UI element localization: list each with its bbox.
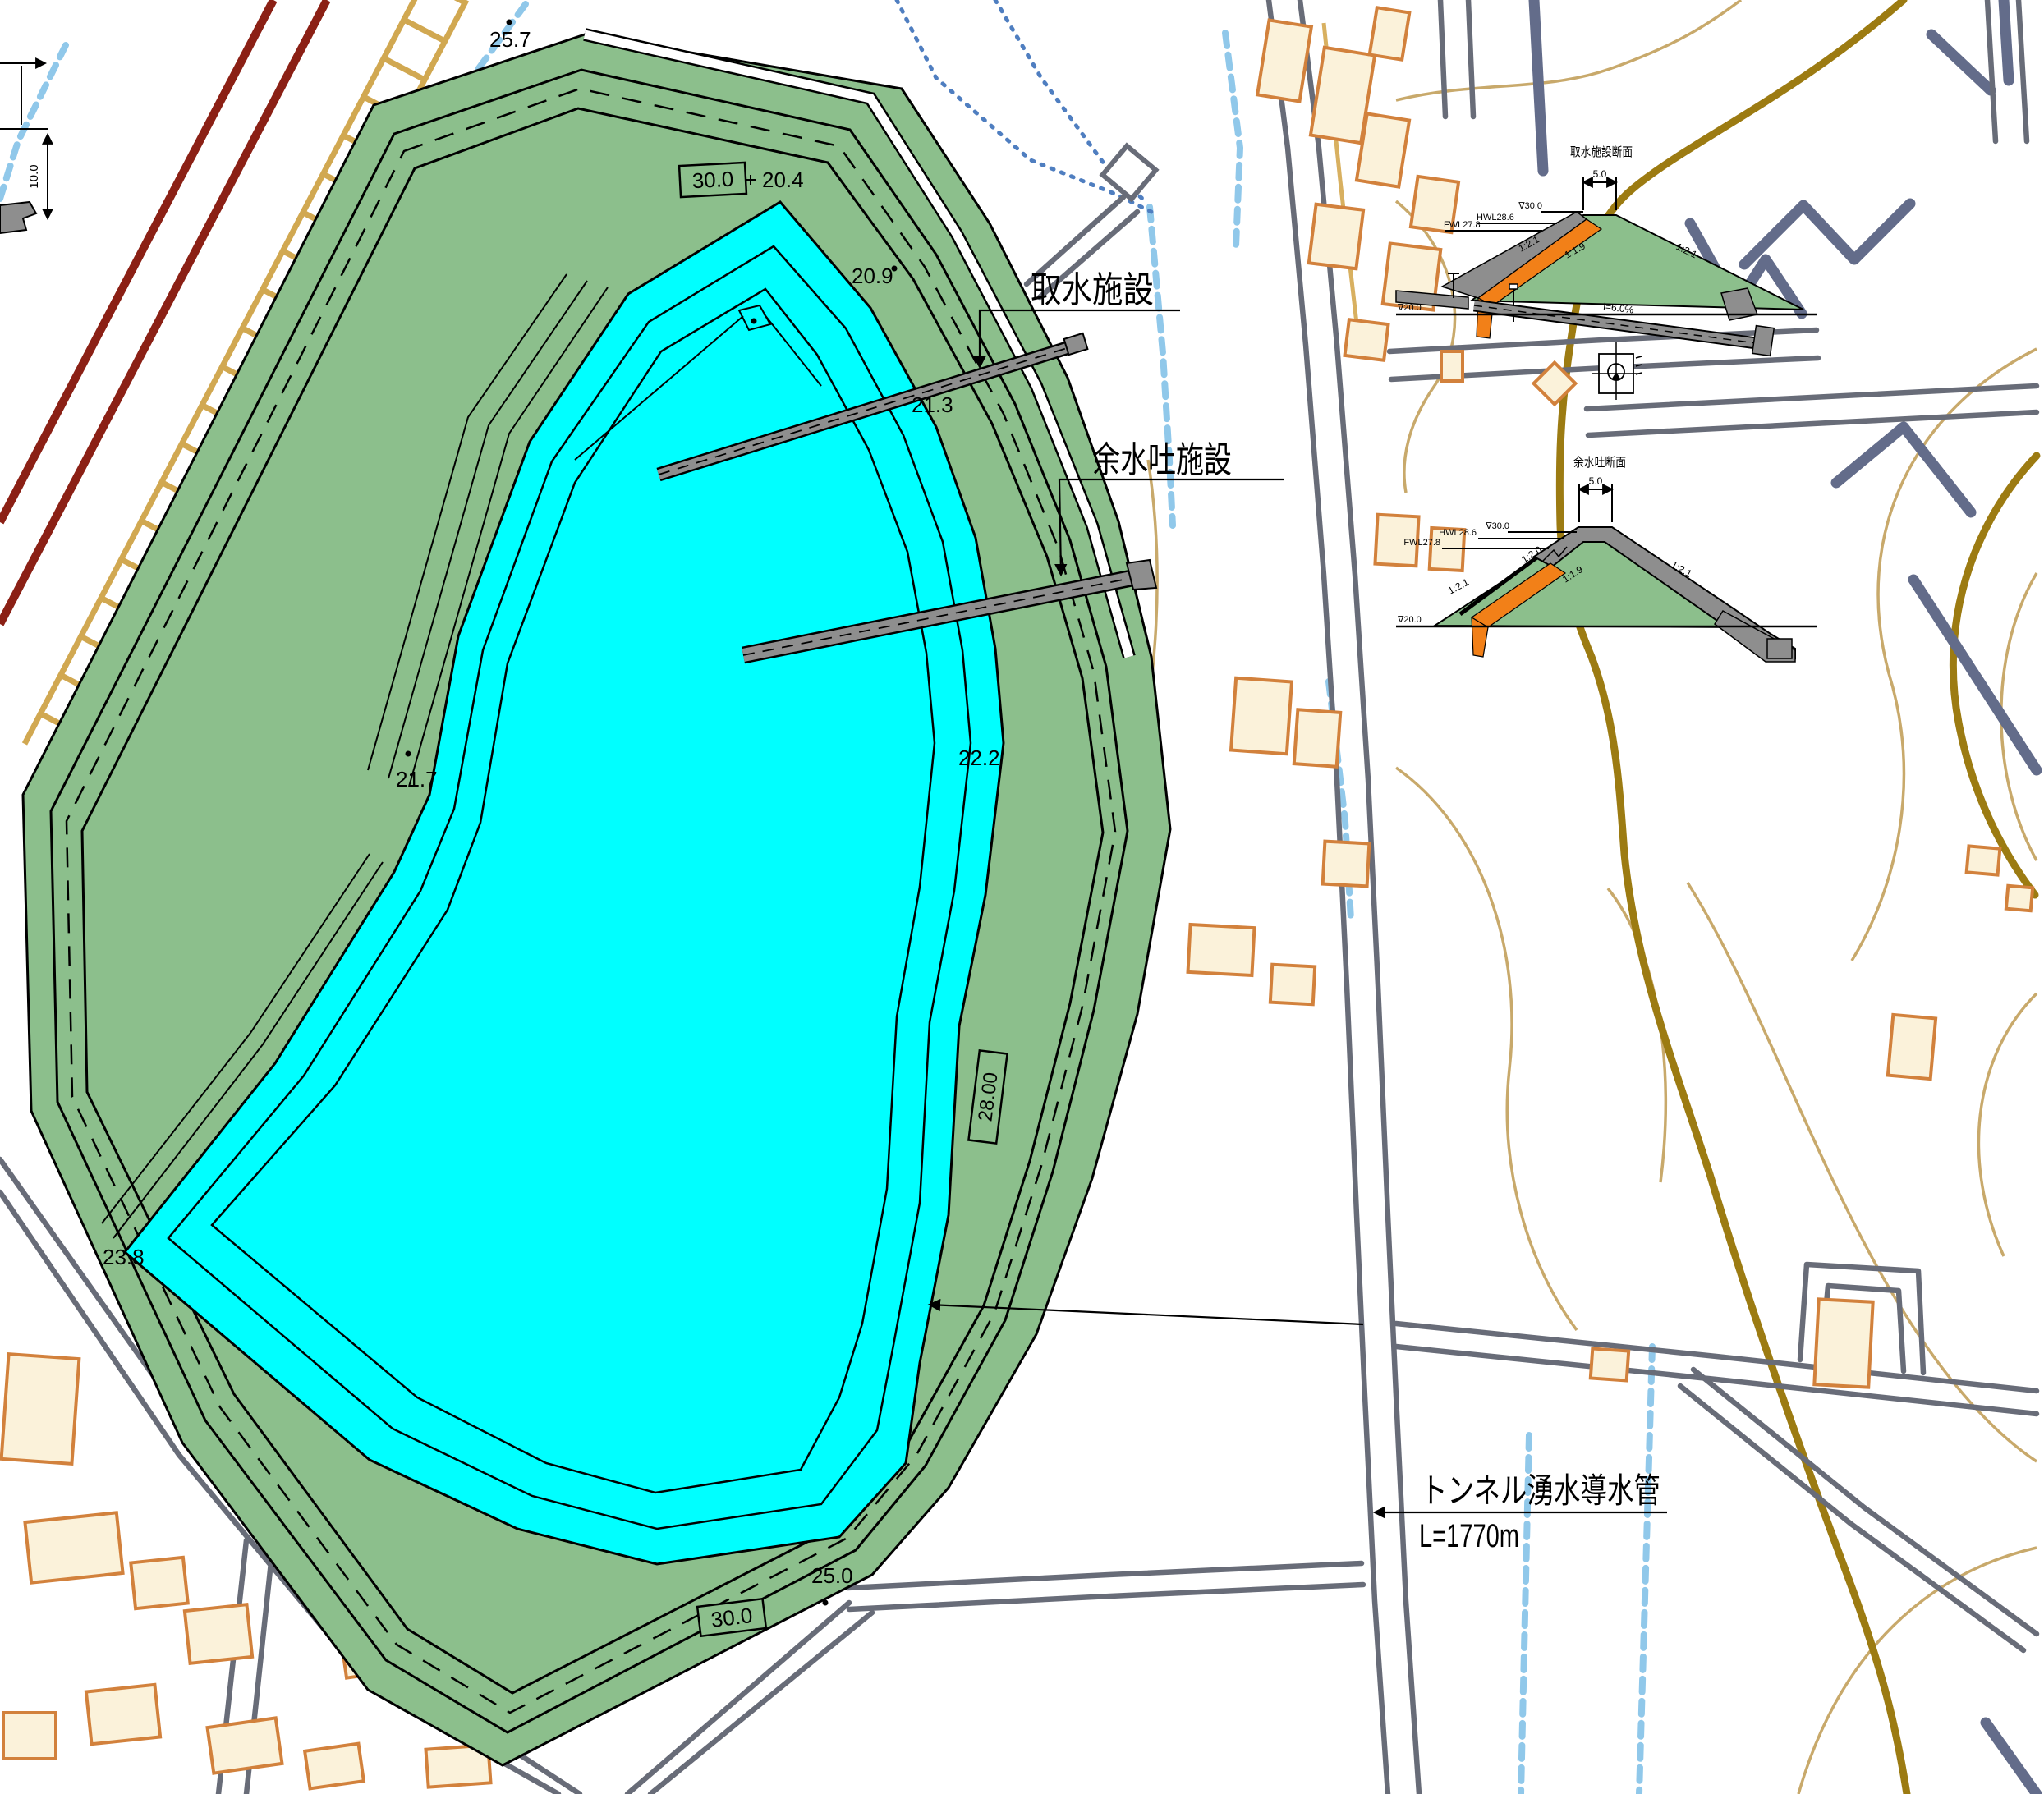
channel-line <box>1931 34 1991 90</box>
crest-level: ∇30.0 <box>1485 521 1509 531</box>
building <box>3 1713 56 1759</box>
building <box>131 1558 188 1608</box>
hwl-label: HWL28.6 <box>1439 528 1477 538</box>
crest-width: 5.0 <box>1589 475 1603 487</box>
channel-line <box>1534 0 1543 171</box>
basin-block <box>1767 639 1792 658</box>
building <box>1814 1299 1872 1387</box>
building <box>1370 7 1410 60</box>
section-title: 余水吐断面 <box>1573 455 1626 470</box>
contour-minor <box>1396 768 1577 1330</box>
wall-section <box>0 202 36 233</box>
spillway-callout: 余水吐施設 <box>1092 440 1232 480</box>
gate-tick <box>1636 356 1642 358</box>
spot-dot <box>406 751 411 757</box>
channel-line <box>1744 204 1910 264</box>
slope-label: 1:2.1 <box>1446 576 1471 597</box>
cad-drawing: 25.7 27.6 10.0 <box>0 0 2044 1794</box>
crest-elevation: 30.0 <box>691 167 734 194</box>
building <box>86 1685 160 1744</box>
reservoir-plan: 30.0 20.4 20.9 21.3 21.7 22.2 23.8 25.0 … <box>23 34 1170 1765</box>
contour-major <box>1953 456 2037 895</box>
building <box>2 1354 80 1464</box>
section-title: 取水施設断面 <box>1570 145 1633 159</box>
building <box>185 1604 252 1663</box>
road-edge <box>1440 0 1445 117</box>
building <box>1323 842 1370 887</box>
building <box>1294 709 1340 766</box>
crest-elevation: 30.0 <box>710 1603 754 1632</box>
water-elevation: 23.8 <box>103 1245 145 1269</box>
spot-dot <box>823 1600 829 1606</box>
water-elevation: 21.7 <box>396 767 438 791</box>
road-edge <box>1588 412 2037 435</box>
building <box>1344 319 1388 360</box>
building <box>25 1512 122 1582</box>
building <box>305 1744 364 1789</box>
water-elevation: 20.9 <box>852 264 893 288</box>
channel-line <box>1913 580 2037 770</box>
building <box>1357 113 1409 186</box>
water-elevation: 20.4 <box>762 167 804 192</box>
stream-line <box>1639 1347 1652 1794</box>
building <box>1188 925 1255 975</box>
intake-callout: 取水施設 <box>1031 270 1154 310</box>
building <box>1309 204 1363 269</box>
tunnel-callout: トンネル湧水導水管 <box>1421 1471 1660 1510</box>
drain-outlet <box>1752 326 1775 356</box>
spot-dot <box>507 20 512 25</box>
ground-level: ∇20.0 <box>1397 303 1422 313</box>
water-elevation: 22.2 <box>958 746 1000 770</box>
contour-minor <box>1978 993 2037 1256</box>
contour-minor <box>1798 1548 2037 1794</box>
road-edge <box>1987 0 1996 141</box>
road-edge <box>1680 1386 2023 1650</box>
pipe-endcap <box>1064 333 1088 355</box>
berm-elevation: 25.0 <box>811 1563 853 1588</box>
fwl-label: FWL27.8 <box>1403 538 1440 548</box>
water-elevation: 21.3 <box>912 392 953 417</box>
dimension-value: 10.0 <box>27 164 41 188</box>
channel-line <box>1836 427 1971 512</box>
deep-point-dot <box>751 319 757 324</box>
building <box>1231 678 1292 755</box>
spot-elevation: 25.7 <box>489 27 531 52</box>
building <box>1967 846 2000 874</box>
stream-line <box>1225 33 1240 246</box>
ground-level: ∇20.0 <box>1397 615 1422 625</box>
fwl-label: FWL27.8 <box>1444 220 1481 230</box>
building <box>2006 886 2033 911</box>
channel-line <box>2004 0 2009 80</box>
building <box>1257 20 1311 101</box>
boxed-elevation: 30.0 <box>679 163 746 197</box>
building <box>1591 1349 1628 1381</box>
road-edge <box>2019 0 2027 141</box>
building <box>1270 965 1315 1005</box>
building <box>1888 1015 1936 1079</box>
hwl-label: HWL28.6 <box>1477 213 1514 223</box>
crest-width: 5.0 <box>1593 168 1607 180</box>
road-edge <box>1587 386 2037 409</box>
contour-minor <box>1396 0 1741 100</box>
building <box>208 1718 282 1773</box>
gauge-cap <box>1509 284 1518 289</box>
road-edge <box>1468 0 1473 117</box>
crest-level: ∇30.0 <box>1518 201 1542 211</box>
gate-symbol <box>1592 342 1642 400</box>
road-edge <box>849 1585 1363 1609</box>
reservoir-plan-drawing: 25.7 27.6 10.0 <box>0 0 2044 1794</box>
edge-detail: 10.0 <box>0 45 66 233</box>
tunnel-length: L=1770m <box>1419 1518 1519 1554</box>
building <box>1441 351 1463 381</box>
channel-line <box>1986 1723 2037 1794</box>
road-edge <box>847 1563 1362 1588</box>
